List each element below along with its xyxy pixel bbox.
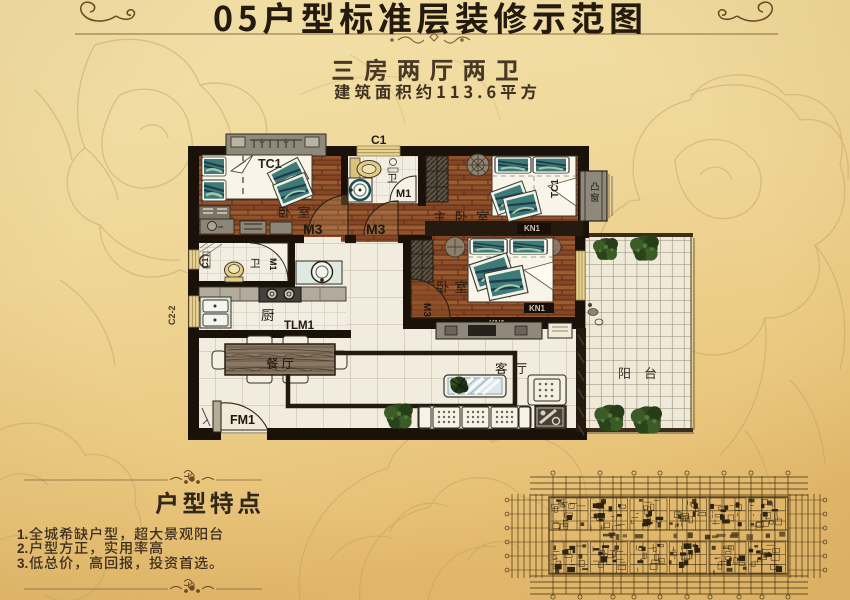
svg-text:2.: 2. (17, 541, 28, 556)
svg-text:C1: C1 (201, 257, 210, 268)
svg-text:M1: M1 (396, 188, 411, 200)
svg-text:TLM1: TLM1 (284, 320, 315, 332)
svg-text:3.: 3. (17, 556, 28, 571)
svg-text:TC1: TC1 (550, 179, 561, 198)
svg-text:C1: C1 (371, 133, 387, 147)
svg-text:FM1: FM1 (230, 413, 255, 427)
svg-text:1.: 1. (17, 527, 28, 542)
svg-text:C2-2: C2-2 (167, 305, 177, 325)
svg-text:M3: M3 (421, 303, 432, 317)
svg-text:KN1: KN1 (529, 304, 546, 313)
svg-text:M3: M3 (366, 221, 386, 237)
svg-text:KN1: KN1 (524, 224, 541, 233)
svg-text:TC1: TC1 (258, 157, 282, 171)
svg-text:M3: M3 (303, 221, 323, 237)
svg-text:M1: M1 (268, 258, 278, 271)
